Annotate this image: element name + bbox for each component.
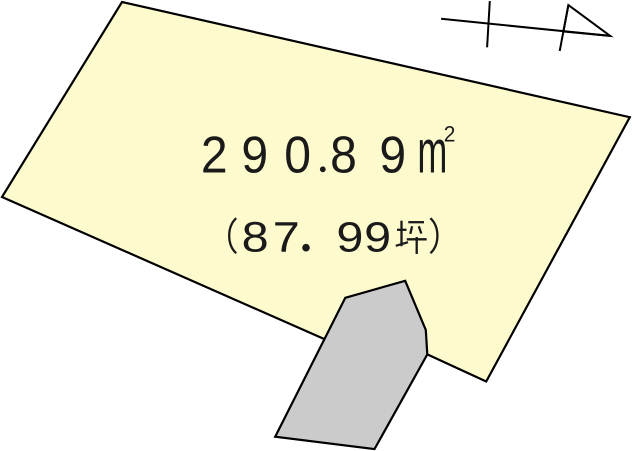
svg-text:7: 7 <box>273 212 300 261</box>
svg-text:9: 9 <box>364 212 391 261</box>
svg-text:0: 0 <box>284 126 311 184</box>
svg-text:8: 8 <box>242 212 269 261</box>
svg-text:8: 8 <box>330 126 357 184</box>
svg-text:2: 2 <box>201 126 228 184</box>
svg-text:9: 9 <box>336 212 363 261</box>
svg-text:9: 9 <box>379 126 406 184</box>
svg-text:9: 9 <box>241 126 268 184</box>
svg-text:2: 2 <box>444 122 456 147</box>
